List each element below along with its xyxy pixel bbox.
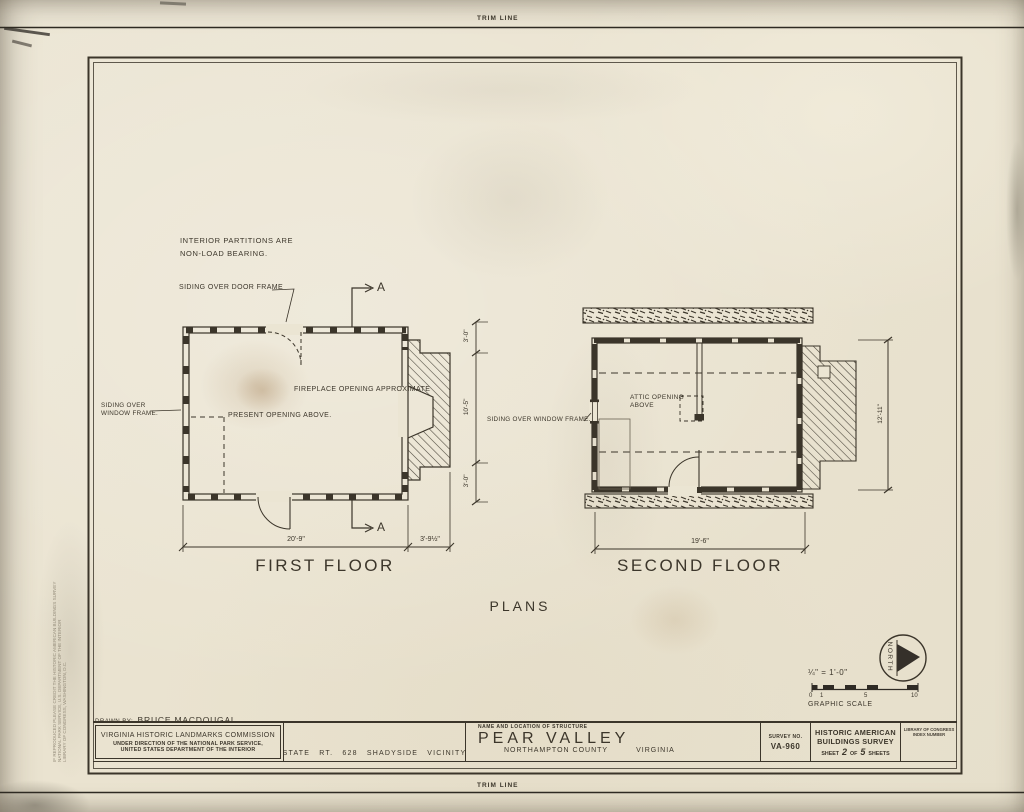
drawing-linework xyxy=(0,0,1024,812)
structure-state: VIRGINIA xyxy=(636,747,675,754)
front-door-swing xyxy=(268,332,301,365)
structure-address: STATE RT. 628 SHADYSIDE VICINITY xyxy=(283,750,467,757)
note-siding-window-sf: SIDING OVER WINDOW FRAME. xyxy=(487,416,591,424)
title-block-loc-cell: LIBRARY OF CONGRESS INDEX NUMBER xyxy=(900,723,957,761)
sheet-of-word: OF xyxy=(850,751,857,757)
title-block-survey-cell: SURVEY NO. VA-960 xyxy=(760,723,810,761)
edge-credit-stamp: IF REPRODUCED PLEASE CREDIT THE HISTORIC… xyxy=(52,592,67,762)
north-arrow-pointer xyxy=(897,644,920,672)
sheet-title-plans: PLANS xyxy=(470,598,570,615)
title-block: VIRGINIA HISTORIC LANDMARKS COMMISSION U… xyxy=(93,721,957,773)
second-floor-plan xyxy=(583,308,893,554)
sheet-word: SHEET xyxy=(821,751,839,757)
leader-siding-door xyxy=(272,289,294,322)
first-floor-chimney xyxy=(408,340,450,480)
title-block-name-cell: NAME AND LOCATION OF STRUCTURE PEAR VALL… xyxy=(465,723,760,761)
scale-tick-5: 5 xyxy=(864,693,867,700)
structure-county: NORTHAMPTON COUNTY xyxy=(504,747,608,754)
habs-line1: HISTORIC AMERICAN xyxy=(815,728,896,737)
dim-first-floor-width: 20'-9" xyxy=(266,536,326,544)
section-letter-top: A xyxy=(377,280,385,294)
note-siding-window-ff-1: SIDING OVER xyxy=(101,402,146,410)
note-present-opening: PRESENT OPENING ABOVE. xyxy=(228,412,332,420)
scale-tick-10: 10 xyxy=(911,693,918,700)
commission-direction2: UNITED STATES DEPARTMENT OF THE INTERIOR xyxy=(121,747,256,753)
structure-name: PEAR VALLEY xyxy=(478,730,760,748)
title-block-location-cell: STATE RT. 628 SHADYSIDE VICINITY xyxy=(283,723,465,761)
side-dimension-string xyxy=(472,319,488,505)
sheet-total-number: 5 xyxy=(860,747,865,757)
graphic-scale-label: GRAPHIC SCALE xyxy=(808,701,873,709)
note-partitions-line1: INTERIOR PARTITIONS ARE xyxy=(180,236,293,245)
habs-line2: BUILDINGS SURVEY xyxy=(817,737,894,746)
dim-second-floor-depth: 12'-11" xyxy=(877,395,885,433)
survey-no-value: VA-960 xyxy=(771,742,801,751)
survey-no-label: SURVEY NO. xyxy=(769,734,803,740)
habs-drawing-sheet: TRIM LINE TRIM LINE INTERIOR PARTITIONS … xyxy=(0,0,1024,812)
dim-second-floor-width: 19'-6" xyxy=(670,538,730,546)
north-label: NORTH xyxy=(885,635,893,679)
trim-line-label-bottom: TRIM LINE xyxy=(477,782,519,790)
dim-side-bottom: 3'-0" xyxy=(463,466,471,496)
scale-tick-1: 1 xyxy=(820,693,823,700)
note-fireplace: FIREPLACE OPENING APPROXIMATE xyxy=(294,386,430,394)
section-letter-bottom: A xyxy=(377,520,385,534)
note-siding-door: SIDING OVER DOOR FRAME xyxy=(179,284,283,292)
title-block-commission-cell: VIRGINIA HISTORIC LANDMARKS COMMISSION U… xyxy=(93,723,283,761)
note-attic-line2: ABOVE xyxy=(630,402,654,410)
sheet-count: SHEET 2 OF 5 SHEETS xyxy=(821,747,889,757)
note-partitions-line2: NON-LOAD BEARING. xyxy=(180,249,268,258)
dim-first-floor-chimney: 3'-9½" xyxy=(410,536,450,544)
scale-tick-0: 0 xyxy=(809,693,812,700)
dim-side-top: 3'-0" xyxy=(463,321,471,351)
title-block-habs-cell: HISTORIC AMERICAN BUILDINGS SURVEY SHEET… xyxy=(810,723,900,761)
note-attic-line1: ATTIC OPENING xyxy=(630,394,684,402)
trim-line-label-top: TRIM LINE xyxy=(477,15,519,23)
second-floor-title: SECOND FLOOR xyxy=(615,556,785,576)
stamp-line3: LIBRARY OF CONGRESS, WASHINGTON, D.C. xyxy=(62,592,67,762)
note-siding-window-ff-2: WINDOW FRAME. xyxy=(101,410,158,418)
first-floor-title: FIRST FLOOR xyxy=(240,556,410,576)
sheet-number: 2 xyxy=(842,747,847,757)
loc-line2: INDEX NUMBER xyxy=(913,732,945,737)
scale-ratio: ¼" = 1'-0" xyxy=(808,668,848,678)
chamber-door-swing xyxy=(669,457,699,487)
dim-side-middle: 10'-5" xyxy=(463,392,471,422)
sheets-word: SHEETS xyxy=(868,751,889,757)
graphic-scale-bar xyxy=(812,683,918,692)
commission-name: VIRGINIA HISTORIC LANDMARKS COMMISSION xyxy=(101,732,275,739)
